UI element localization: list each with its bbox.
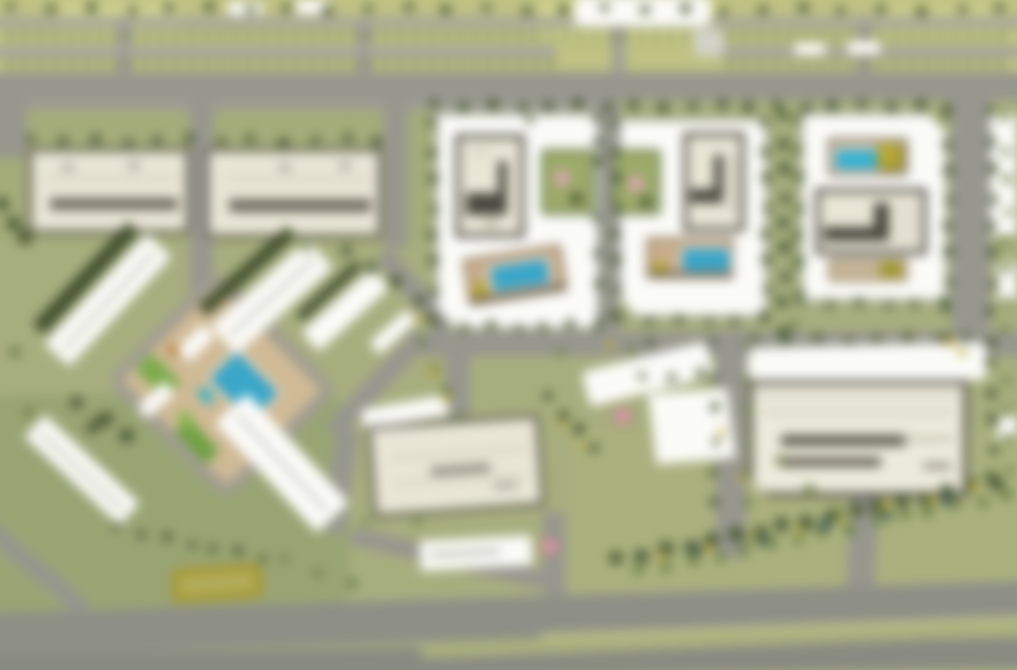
tree-icon [943, 165, 954, 176]
parked-car-tick [428, 30, 433, 42]
parked-car-tick [848, 58, 853, 70]
tree-icon [594, 156, 604, 166]
main-road-top [0, 72, 1017, 100]
parked-car-tick [593, 30, 598, 42]
tree-icon [801, 103, 812, 114]
tree-icon [986, 221, 996, 231]
tree-icon [680, 3, 691, 14]
car-dot [848, 41, 880, 54]
tree-icon [756, 535, 767, 546]
tree-icon [565, 319, 575, 329]
tree-icon [152, 135, 162, 145]
parked-car-tick [803, 30, 808, 42]
white-building-bottom-small [419, 535, 532, 571]
parked-car-tick [188, 58, 193, 70]
parked-car-tick [488, 30, 493, 42]
parked-car-tick [413, 58, 418, 70]
tower-block2 [683, 132, 745, 232]
parked-car-tick [893, 30, 898, 42]
white-strip-long [748, 342, 988, 386]
parked-car-tick [113, 30, 118, 42]
tree-icon [833, 507, 845, 519]
tree-icon [522, 6, 532, 16]
tree-icon [427, 118, 436, 127]
tree-icon [86, 2, 97, 13]
parked-car-tick [818, 30, 823, 42]
tree-icon [883, 510, 893, 520]
hedge-garden-yellow [171, 563, 263, 603]
road-between-block1-block2 [598, 98, 619, 336]
parked-car-tick [473, 58, 478, 70]
tree-icon [777, 109, 788, 120]
parked-car-tick [263, 58, 268, 70]
entrance-marker [614, 408, 630, 424]
road-right-of-cream-b [384, 96, 407, 248]
amenity-deck-block3-bottom [828, 258, 908, 282]
tree-icon [717, 99, 728, 110]
tree-icon [895, 494, 909, 508]
amenity-deck-block3-top [828, 138, 908, 176]
parked-car-tick [143, 58, 148, 70]
tree-icon [86, 422, 98, 434]
parked-car-tick [878, 58, 883, 70]
parked-car-tick [548, 58, 553, 70]
pink-blossom-tree [554, 170, 570, 186]
parked-car-tick [938, 58, 943, 70]
tree-icon [718, 428, 726, 436]
tree-icon [760, 229, 770, 239]
tree-icon [233, 546, 243, 556]
parked-car-tick [173, 58, 178, 70]
parked-car-tick [983, 58, 988, 70]
tree-icon [558, 4, 569, 15]
tree-icon [600, 3, 609, 12]
parked-car-tick [818, 58, 823, 70]
parked-car-tick [458, 30, 463, 42]
tree-icon [23, 407, 34, 418]
tree-icon [746, 440, 754, 448]
parked-car-tick [743, 58, 748, 70]
tree-icon [758, 5, 768, 15]
tree-icon [184, 133, 195, 144]
parked-car-tick [833, 30, 838, 42]
deck-shadow [649, 271, 731, 278]
tree-icon [280, 554, 289, 563]
tree-icon [646, 338, 655, 347]
tree-icon [804, 484, 815, 495]
parked-car-tick [8, 58, 13, 70]
tree-icon [989, 280, 998, 289]
tree-icon [430, 205, 439, 214]
roof-line [430, 549, 500, 558]
tree-icon [515, 324, 523, 332]
parked-car-tick [938, 30, 943, 42]
roof-dark-band [466, 193, 507, 215]
parked-car-tick [83, 30, 88, 42]
tree-icon [593, 249, 602, 258]
tree-icon [162, 532, 172, 542]
tree-icon [718, 7, 727, 16]
tree-icon [985, 471, 996, 482]
tree-icon [453, 413, 463, 423]
tree-icon [1004, 208, 1012, 216]
roof-dark-band [824, 227, 889, 241]
tree-icon [987, 247, 998, 258]
parked-car-tick [803, 58, 808, 70]
tree-icon [594, 279, 604, 289]
parked-car-tick [443, 58, 448, 70]
tower-block1 [455, 134, 525, 238]
tree-icon [688, 101, 698, 111]
parked-car-tick [923, 58, 928, 70]
parked-car-tick [548, 30, 553, 42]
tree-icon [1001, 263, 1011, 273]
tree-icon [1002, 376, 1011, 385]
parked-car-tick [38, 30, 43, 42]
tree-icon [609, 193, 616, 200]
parked-car-tick [503, 58, 508, 70]
white-trapezoid-building [648, 388, 736, 464]
parked-car-tick [908, 30, 913, 42]
tree-icon [526, 116, 534, 124]
parked-car-tick [323, 58, 328, 70]
tree-icon [593, 138, 602, 147]
roof-line [389, 447, 529, 461]
tree-icon [458, 102, 469, 113]
tree-icon [404, 2, 414, 12]
parked-car-tick [203, 30, 208, 42]
parked-car-tick [263, 30, 268, 42]
parked-car-tick [968, 58, 973, 70]
tree-icon [657, 102, 669, 114]
parked-car-tick [53, 58, 58, 70]
tree-icon [876, 4, 886, 14]
parked-car-tick [788, 58, 793, 70]
tree-icon [428, 173, 439, 184]
tree-icon [943, 246, 954, 257]
parked-car-tick [398, 58, 403, 70]
tree-icon [538, 322, 547, 331]
tree-icon [765, 536, 778, 549]
parked-car-tick [863, 58, 868, 70]
parked-car-tick [308, 58, 313, 70]
tree-icon [986, 137, 996, 147]
tree-icon [414, 295, 425, 306]
tree-icon [780, 272, 791, 283]
parked-car-tick [128, 58, 133, 70]
tree-icon [6, 216, 21, 231]
parked-car-tick [728, 30, 733, 42]
parked-car-tick [758, 58, 763, 70]
tree-icon [102, 412, 114, 424]
tree-icon [634, 549, 649, 564]
service-road-top-left [0, 100, 605, 110]
tree-icon [90, 134, 101, 145]
parked-car-tick [758, 30, 763, 42]
parked-car-tick [908, 58, 913, 70]
tree-icon [958, 348, 967, 357]
tree-icon [603, 102, 613, 112]
parked-car-tick [788, 30, 793, 42]
parked-car-tick [158, 58, 163, 70]
tree-icon [760, 118, 769, 127]
parked-car-tick [143, 30, 148, 42]
parked-car-tick [773, 58, 778, 70]
tree-icon [705, 318, 713, 326]
tree-icon [428, 368, 437, 377]
building-block3 [815, 188, 927, 255]
tree-icon [459, 323, 468, 332]
parked-car-tick [233, 58, 238, 70]
roof-mark [470, 149, 490, 155]
tree-icon [945, 337, 955, 347]
tree-icon [738, 474, 746, 482]
tree-icon [371, 136, 382, 147]
tree-icon [573, 423, 585, 435]
parking-aisle [0, 46, 556, 58]
parked-car-tick [98, 58, 103, 70]
tree-icon [606, 340, 615, 349]
tree-icon [413, 517, 422, 526]
tree-icon [790, 233, 800, 243]
parked-car-tick [518, 58, 523, 70]
tree-icon [17, 229, 33, 245]
parked-car-tick [293, 30, 298, 42]
car-dot [795, 43, 825, 55]
tree-icon [418, 314, 426, 322]
tree-icon [46, 4, 56, 14]
tree-icon [939, 296, 949, 306]
parked-car-tick [203, 58, 208, 70]
roof-band [229, 199, 371, 212]
parked-car-tick [578, 30, 583, 42]
tree-icon [743, 498, 753, 508]
tree-icon [365, 262, 377, 274]
tree-icon [611, 254, 622, 265]
roof-band [50, 198, 178, 210]
parked-car-tick [23, 58, 28, 70]
parked-car-tick [113, 58, 118, 70]
tree-icon [282, 3, 292, 13]
tree-icon [610, 118, 619, 127]
parked-car-tick [398, 30, 403, 42]
tree-icon [712, 438, 720, 446]
roof-light-panel [726, 155, 740, 213]
amenity-deck-block2 [646, 237, 734, 279]
tree-icon [628, 100, 639, 111]
site-plan-canvas [0, 0, 1017, 670]
tree-icon [278, 137, 289, 148]
cream-building-b [205, 148, 382, 238]
tree-icon [795, 526, 804, 535]
tree-icon [137, 530, 146, 539]
tree-icon [709, 373, 718, 382]
roof-mark [339, 162, 351, 169]
roof-dark-band [781, 457, 881, 467]
roof-dark-band [781, 435, 906, 446]
parked-car-tick [533, 30, 538, 42]
roof-light-panel [896, 201, 918, 245]
parked-car-tick [893, 58, 898, 70]
tree-icon [819, 519, 831, 531]
tree-icon [709, 497, 719, 507]
tree-icon [347, 578, 358, 589]
tree-icon [899, 508, 911, 520]
tree-icon [364, 4, 373, 13]
parked-car-tick [488, 58, 493, 70]
parked-car-tick [983, 30, 988, 42]
parked-car-tick [188, 30, 193, 42]
tree-icon [759, 313, 769, 323]
tree-icon [188, 541, 196, 549]
parked-car-tick [443, 30, 448, 42]
tree-icon [217, 137, 226, 146]
deck-planting-yellow [877, 144, 903, 170]
tree-icon [836, 6, 845, 15]
parked-car-tick [173, 30, 178, 42]
parking-connector [612, 18, 625, 74]
tree-icon [341, 245, 352, 256]
roof-line [903, 437, 953, 441]
tree-icon [543, 101, 554, 112]
parked-car-tick [428, 58, 433, 70]
parked-car-tick [248, 30, 253, 42]
parked-car-tick [998, 58, 1003, 70]
tree-icon [730, 316, 739, 325]
tree-icon [903, 332, 913, 342]
car-dot [694, 30, 724, 56]
roof-mark [128, 162, 140, 169]
parked-car-tick [833, 58, 838, 70]
cream-complex-large [748, 380, 968, 497]
tree-icon [886, 102, 897, 113]
tree-icon [778, 241, 791, 254]
parked-car-tick [533, 58, 538, 70]
parked-car-tick [233, 30, 238, 42]
tree-icon [430, 287, 439, 296]
masterplan-rendering [0, 0, 1017, 670]
tree-icon [1000, 325, 1009, 334]
roof-band-light [759, 393, 957, 399]
parked-car-tick [278, 30, 283, 42]
parked-car-tick [743, 30, 748, 42]
road-right-of-block3 [952, 96, 990, 358]
parked-car-tick [608, 30, 613, 42]
tree-icon [885, 301, 893, 309]
tree-icon [658, 552, 667, 561]
roof-mark [923, 463, 951, 469]
tree-icon [790, 114, 799, 123]
tree-icon [610, 229, 620, 239]
parked-car-tick [353, 58, 358, 70]
roof-mark [486, 219, 496, 227]
parked-car-tick [623, 30, 628, 42]
tree-icon [9, 346, 21, 358]
parked-car-tick [368, 58, 373, 70]
parked-car-tick [128, 30, 133, 42]
tree-icon [208, 544, 217, 553]
tree-icon [442, 394, 451, 403]
tree-icon [945, 278, 954, 287]
tree-icon [128, 6, 137, 15]
parked-car-tick [308, 30, 313, 42]
parked-car-tick [68, 30, 73, 42]
parked-car-tick [53, 30, 58, 42]
parked-car-tick [383, 58, 388, 70]
tree-icon [1000, 488, 1013, 501]
tree-icon [942, 140, 952, 150]
parked-car-tick [248, 58, 253, 70]
parked-car-tick [278, 58, 283, 70]
road-vertical-small [446, 332, 470, 426]
tree-icon [986, 388, 997, 399]
parked-car-tick [293, 58, 298, 70]
tree-icon [872, 516, 883, 527]
roof-mark [493, 482, 517, 490]
parked-car-tick [413, 30, 418, 42]
parked-car-tick [323, 30, 328, 42]
tree-icon [696, 368, 706, 378]
tree-icon [580, 442, 588, 450]
parked-car-tick [968, 30, 973, 42]
parked-car-tick [38, 58, 43, 70]
parked-car-tick [338, 30, 343, 42]
tree-icon [791, 260, 802, 271]
roof-mark [430, 464, 490, 476]
road-left-edge [0, 92, 26, 158]
parked-car-tick [683, 30, 688, 42]
tree-icon [742, 101, 754, 113]
tree-icon [633, 565, 644, 576]
parked-car-tick [953, 30, 958, 42]
tree-icon [710, 402, 720, 412]
tree-icon [119, 428, 134, 443]
parked-car-tick [383, 30, 388, 42]
tree-icon [743, 376, 752, 385]
tree-icon [311, 136, 320, 145]
parked-car-tick [653, 30, 658, 42]
tree-icon [777, 217, 789, 229]
tree-icon [301, 242, 311, 252]
tree-icon [728, 526, 744, 542]
parked-car-tick [923, 30, 928, 42]
tree-icon [558, 410, 569, 421]
tree-icon [985, 306, 995, 316]
tree-icon [738, 544, 750, 556]
tree-icon [843, 523, 856, 536]
tree-icon [780, 193, 791, 204]
roof-line [46, 176, 178, 181]
road-vertical-bottom [543, 512, 565, 604]
tree-icon [744, 405, 754, 415]
tree-icon [986, 337, 997, 348]
garden-tree [570, 192, 583, 205]
tree-icon [389, 275, 402, 288]
parked-car-tick [773, 30, 778, 42]
tree-icon [667, 373, 676, 382]
parked-car-tick [998, 30, 1003, 42]
tree-icon [825, 300, 834, 309]
parked-car-tick [68, 58, 73, 70]
tree-icon [589, 443, 599, 453]
roof-mark [62, 164, 74, 171]
parked-car-tick [8, 30, 13, 42]
tree-icon [1002, 174, 1012, 184]
tree-icon [857, 99, 867, 109]
tree-icon [124, 138, 133, 147]
tree-icon [627, 345, 637, 355]
parked-car-tick [503, 30, 508, 42]
